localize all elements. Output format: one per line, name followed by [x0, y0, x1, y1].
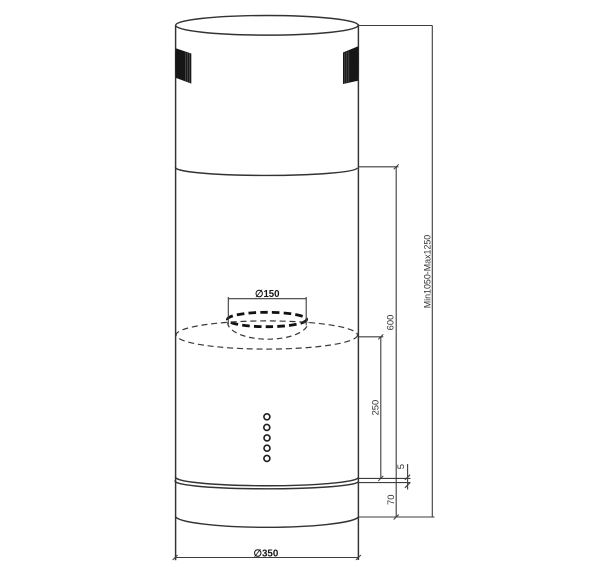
svg-text:∅350: ∅350	[253, 549, 278, 560]
svg-text:250: 250	[370, 400, 381, 416]
svg-text:70: 70	[385, 495, 396, 505]
svg-text:∅150: ∅150	[255, 289, 280, 300]
svg-text:Min1050-Max1250: Min1050-Max1250	[421, 235, 432, 309]
svg-text:5: 5	[395, 464, 406, 469]
svg-text:600: 600	[384, 315, 395, 331]
